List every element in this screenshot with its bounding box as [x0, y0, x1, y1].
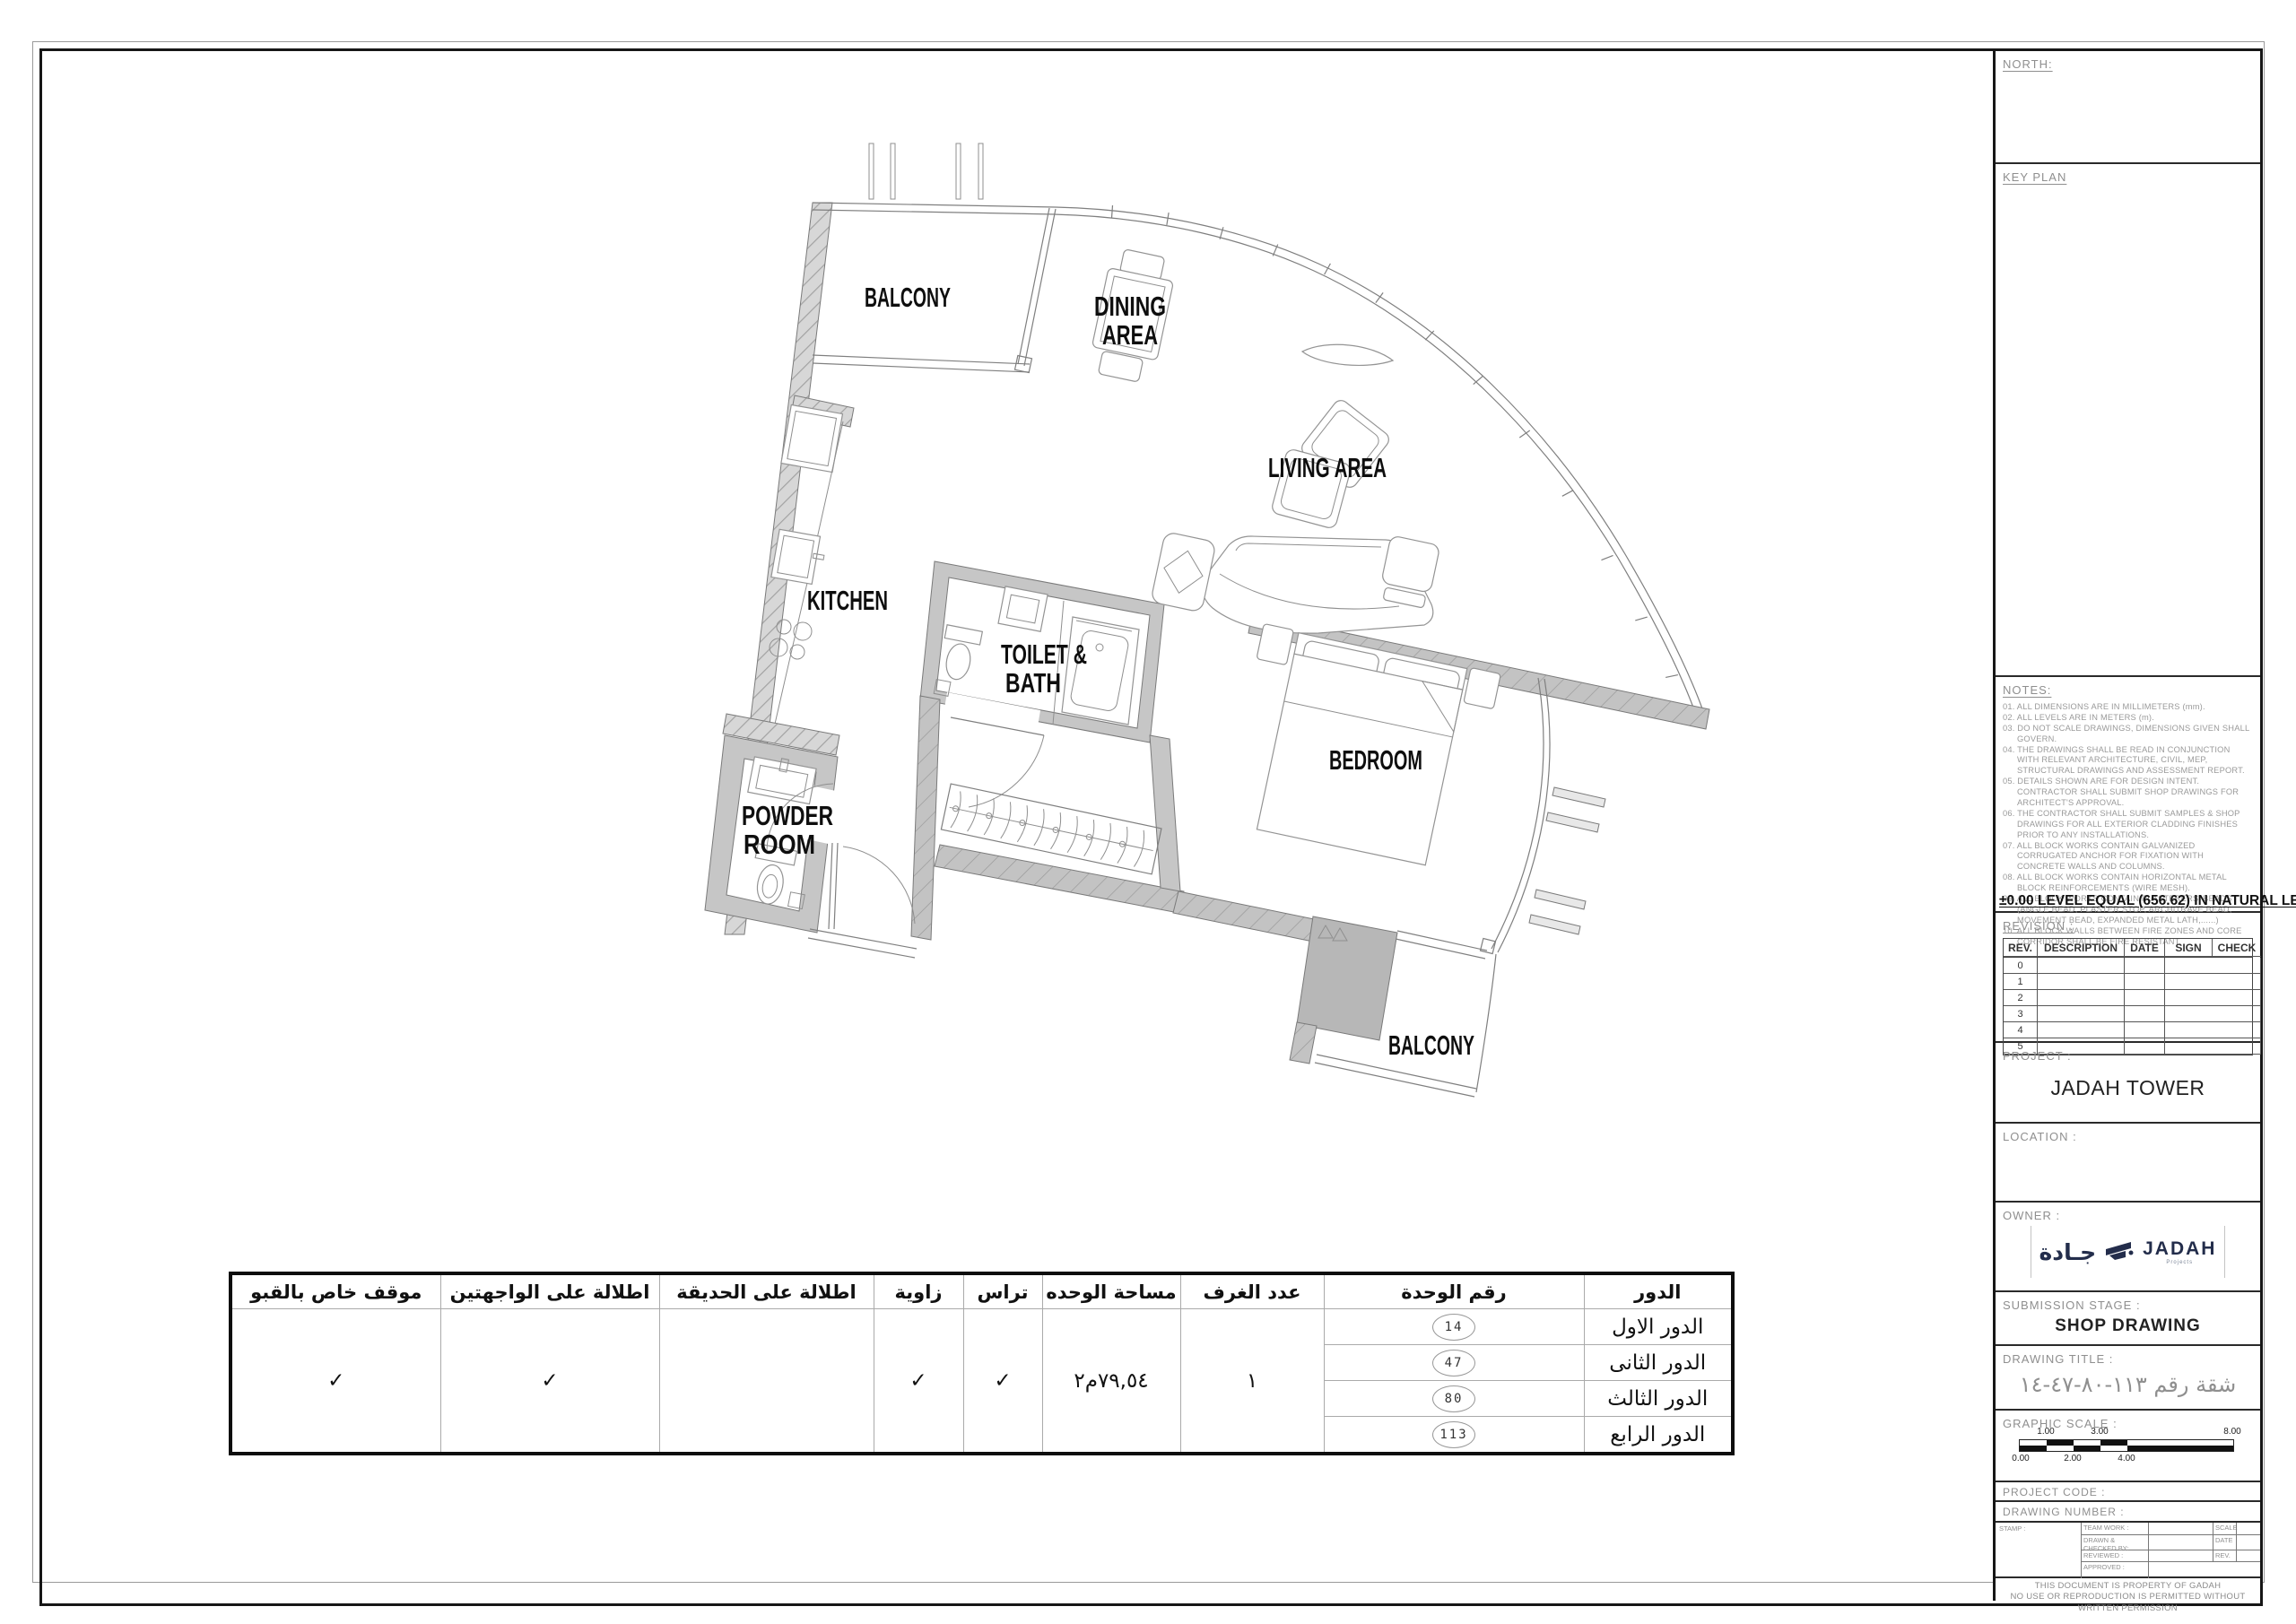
rev-empty-cell [2125, 958, 2165, 974]
date-mini-label: DATE [2213, 1535, 2236, 1550]
note-line: 06. THE CONTRACTOR SHALL SUBMIT SAMPLES … [2003, 809, 2253, 841]
reviewed-label: REVIEWED : [2081, 1550, 2148, 1562]
revision-table: REV. DESCRIPTION DATE SIGN CHECK [2003, 938, 2253, 958]
col-basement-parking: موقف خاص بالقبو [230, 1273, 440, 1309]
scale-tick: 1.00 [2037, 1427, 2054, 1437]
jadah-logo: جـادة JADAH Projects [1996, 1226, 2260, 1278]
keyplan-section: KEY PLAN [1996, 164, 2260, 677]
label-bedroom: BEDROOM [1329, 744, 1422, 776]
col-rooms: عدد الغرف [1180, 1273, 1324, 1309]
drawn-checked-value [2148, 1535, 2213, 1550]
label-dining-2: AREA [1102, 319, 1158, 351]
logo-latin: JADAH [2143, 1238, 2216, 1260]
scale-mini-label: SCALE [2213, 1523, 2236, 1535]
drawing-title-section: DRAWING TITLE : شقة رقم ١١٣-٨٠-٤٧-١٤ [1996, 1346, 2260, 1411]
notes-list: 01. ALL DIMENSIONS ARE IN MILLIMETERS (m… [2003, 702, 2253, 947]
col-two-facade-view: اطلالة على الواجهتين [440, 1273, 659, 1309]
unit-area: ٧٩,٥٤م٢ [1042, 1309, 1180, 1455]
rev-number-cell: 1 [2004, 974, 2038, 990]
rev-col-header: DESCRIPTION [2038, 939, 2125, 957]
unit-number-badge: 14 [1432, 1314, 1475, 1341]
label-kitchen: KITCHEN [807, 585, 888, 616]
rev-mini-value [2236, 1550, 2260, 1562]
floor-name: الدور الرابع [1584, 1417, 1733, 1455]
corridor-west-wall [911, 696, 940, 940]
revision-section: REVISION : REV. DESCRIPTION DATE SIGN CH… [1996, 913, 2260, 1043]
project-code-section: PROJECT CODE : [1996, 1482, 2260, 1502]
rev-col-header: CHECK [2213, 939, 2261, 957]
label-living: LIVING AREA [1268, 452, 1387, 483]
note-line: 04. THE DRAWINGS SHALL BE READ IN CONJUN… [2003, 745, 2253, 777]
scale-tick: 2.00 [2064, 1454, 2081, 1463]
rev-empty-cell [2213, 1022, 2261, 1038]
rev-number-cell: 3 [2004, 1006, 2038, 1022]
rev-empty-cell [2125, 974, 2165, 990]
rev-empty-cell [2038, 1022, 2125, 1038]
two-facade-check: ✓ [440, 1309, 659, 1455]
keyplan-label: KEY PLAN [2003, 170, 2066, 184]
rev-number-cell: 0 [2004, 958, 2038, 974]
disclaimer-line-2: NO USE OR REPRODUCTION IS PERMITTED WITH… [1996, 1592, 2260, 1614]
col-floor: الدور [1584, 1273, 1733, 1309]
rev-empty-cell [2038, 1006, 2125, 1022]
team-work-value [2148, 1523, 2213, 1535]
corner-check: ✓ [874, 1309, 963, 1455]
toilet-sink [998, 586, 1048, 631]
note-line: 05. DETAILS SHOWN ARE FOR DESIGN INTENT.… [2003, 777, 2253, 809]
rev-mini-label: REV. [2213, 1550, 2236, 1562]
rev-empty-cell [2213, 958, 2261, 974]
scale-tick: 8.00 [2223, 1427, 2240, 1437]
project-code-label: PROJECT CODE : [2003, 1486, 2105, 1498]
rev-empty-cell [2125, 990, 2165, 1006]
north-label: NORTH: [2003, 57, 2053, 71]
notes-label: NOTES: [2003, 683, 2051, 697]
graphic-scale-bar [2019, 1439, 2234, 1452]
note-line: 01. ALL DIMENSIONS ARE IN MILLIMETERS (m… [2003, 702, 2253, 713]
rev-empty-cell [2213, 974, 2261, 990]
unit-number-cell: 14 [1324, 1309, 1584, 1345]
owner-section: OWNER : جـادة JADAH Projects [1996, 1203, 2260, 1292]
facade-mullion-ticks [869, 143, 983, 199]
rev-number-cell: 2 [2004, 990, 2038, 1006]
scale-mini-value [2236, 1523, 2260, 1535]
approved-label: APPROVED : [2081, 1562, 2148, 1578]
rev-empty-cell [2165, 958, 2213, 974]
rev-empty-cell [2125, 1022, 2165, 1038]
scale-tick: 4.00 [2118, 1454, 2135, 1463]
label-powder-2: ROOM [744, 829, 815, 860]
kitchen-counter [726, 404, 843, 732]
label-powder-1: POWDER [742, 800, 833, 831]
owner-label: OWNER : [2003, 1209, 2060, 1222]
unit-number-badge: 80 [1432, 1385, 1475, 1412]
reviewed-value [2148, 1550, 2213, 1562]
north-section: NORTH: [1996, 51, 2260, 164]
rev-empty-cell [2165, 974, 2213, 990]
unit-data-table: الدور رقم الوحدة عدد الغرف مساحة الوحده … [229, 1272, 1735, 1455]
drawing-title-value: شقة رقم ١١٣-٨٠-٤٧-١٤ [2020, 1372, 2236, 1397]
unit-number-badge: 113 [1432, 1421, 1475, 1448]
level-note: ±0.00 LEVEL EQUAL (656.62) IN NATURAL LE… [1999, 893, 2258, 909]
sheet: BALCONY DINING AREA LIVING AREA KITCHEN … [0, 0, 2296, 1624]
label-toilet-1: TOILET & [1001, 638, 1087, 670]
rev-empty-cell [2038, 990, 2125, 1006]
rev-col-header: REV. [2004, 939, 2038, 957]
date-mini-value [2236, 1535, 2260, 1550]
project-label: PROJECT : [2003, 1049, 2072, 1063]
garden-view-check [659, 1309, 874, 1455]
rev-empty-cell [2038, 958, 2125, 974]
floor-row-1: الدور الاول 14 ١ ٧٩,٥٤م٢ ✓ ✓ ✓ ✓ [230, 1309, 1733, 1345]
rooms-count: ١ [1180, 1309, 1324, 1455]
rev-col-header: SIGN [2165, 939, 2213, 957]
submission-label: SUBMISSION STAGE : [2003, 1298, 2141, 1312]
rev-empty-cell [2213, 990, 2261, 1006]
col-area: مساحة الوحده [1042, 1273, 1180, 1309]
col-garden-view: اطلالة على الحديقة [659, 1273, 874, 1309]
col-unit-no: رقم الوحدة [1324, 1273, 1584, 1309]
notes-section: NOTES: 01. ALL DIMENSIONS ARE IN MILLIME… [1996, 677, 2260, 913]
floor-name: الدور الثالث [1584, 1381, 1733, 1417]
logo-divider-right [2224, 1226, 2225, 1278]
logo-arabic: جـادة [2039, 1239, 2097, 1265]
scale-tick: 3.00 [2091, 1427, 2108, 1437]
unit-number-cell: 47 [1324, 1345, 1584, 1381]
logo-sub: Projects [2143, 1260, 2216, 1265]
rev-empty-cell [2125, 1006, 2165, 1022]
stamp-label: STAMP : [1999, 1524, 2025, 1533]
rev-empty-cell [2213, 1006, 2261, 1022]
wardrobe-east-wall [1150, 735, 1180, 891]
revision-rows: 0 1 2 3 [2003, 958, 2253, 1055]
disclaimer-line-1: THIS DOCUMENT IS PROPERTY OF GADAH [1996, 1581, 2260, 1592]
label-dining-1: DINING [1094, 291, 1166, 322]
living-furniture [1202, 344, 1440, 633]
drawing-number-section: DRAWING NUMBER : [1996, 1502, 2260, 1523]
scale-tick: 0.00 [2012, 1454, 2029, 1463]
note-line: 02. ALL LEVELS ARE IN METERS (m). [2003, 713, 2253, 724]
floor-name: الدور الثانى [1584, 1345, 1733, 1381]
label-toilet-2: BATH [1005, 667, 1061, 699]
location-label: LOCATION : [2003, 1130, 2077, 1143]
note-line: 03. DO NOT SCALE DRAWINGS, DIMENSIONS GI… [2003, 724, 2253, 745]
bathtub [1062, 617, 1139, 725]
unit-number-cell: 113 [1324, 1417, 1584, 1455]
basement-parking-check: ✓ [230, 1309, 440, 1455]
label-balcony-top: BALCONY [865, 282, 951, 313]
rev-empty-cell [2038, 974, 2125, 990]
drawing-title-label: DRAWING TITLE : [2003, 1352, 2113, 1366]
bedroom-south-wall [1173, 891, 1318, 942]
label-balcony-bottom: BALCONY [1388, 1029, 1474, 1061]
drawing-number-label: DRAWING NUMBER : [2003, 1506, 2125, 1518]
col-terrace: تراس [963, 1273, 1042, 1309]
drawn-checked-label: DRAWN & CHECKED BY: [2081, 1535, 2148, 1550]
unit-number-badge: 47 [1432, 1350, 1475, 1376]
project-section: PROJECT : JADAH TOWER [1996, 1043, 2260, 1124]
disclaimer-section: THIS DOCUMENT IS PROPERTY OF GADAH NO US… [1996, 1578, 2260, 1606]
logo-mark-icon [2104, 1238, 2135, 1265]
unit-table-header-row: الدور رقم الوحدة عدد الغرف مساحة الوحده … [230, 1273, 1733, 1309]
note-line: 07. ALL BLOCK WORKS CONTAIN GALVANIZED C… [2003, 841, 2253, 873]
team-work-label: TEAM WORK : [2081, 1523, 2148, 1535]
terrace-check: ✓ [963, 1309, 1042, 1455]
approved-value [2148, 1562, 2213, 1578]
stamp-section: STAMP : TEAM WORK : DRAWN & CHECKED BY: … [1996, 1523, 2260, 1578]
rev-empty-cell [2165, 1006, 2213, 1022]
submission-section: SUBMISSION STAGE : SHOP DRAWING [1996, 1292, 2260, 1346]
rev-col-header: DATE [2125, 939, 2165, 957]
unit-number-cell: 80 [1324, 1381, 1584, 1417]
submission-value: SHOP DRAWING [2055, 1316, 2201, 1336]
project-name: JADAH TOWER [2050, 1076, 2205, 1100]
title-block: NORTH: KEY PLAN NOTES: 01. ALL DIMENSION… [1993, 51, 2260, 1601]
location-section: LOCATION : [1996, 1124, 2260, 1203]
col-corner: زاوية [874, 1273, 963, 1309]
revision-label: REVISION : [2003, 919, 2074, 933]
graphic-scale-section: GRAPHIC SCALE : 1.00 3.00 8.00 0.00 2.00… [1996, 1411, 2260, 1482]
rev-empty-cell [2165, 990, 2213, 1006]
rev-empty-cell [2165, 1022, 2213, 1038]
rev-number-cell: 4 [2004, 1022, 2038, 1038]
logo-divider-left [2031, 1226, 2031, 1278]
floor-name: الدور الاول [1584, 1309, 1733, 1345]
note-line: 08. ALL BLOCK WORKS CONTAIN HORIZONTAL M… [2003, 873, 2253, 894]
